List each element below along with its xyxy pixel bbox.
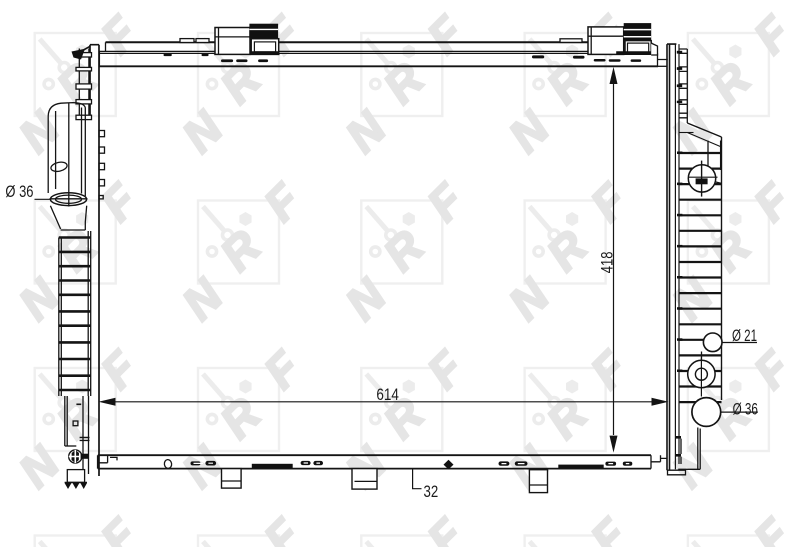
svg-text:Ø 36: Ø 36 [733,401,758,419]
svg-text:418: 418 [599,252,617,274]
svg-text:Ø 21: Ø 21 [732,327,757,345]
svg-text:Ø 36: Ø 36 [5,183,33,201]
svg-text:614: 614 [376,386,399,404]
svg-text:32: 32 [424,483,439,501]
